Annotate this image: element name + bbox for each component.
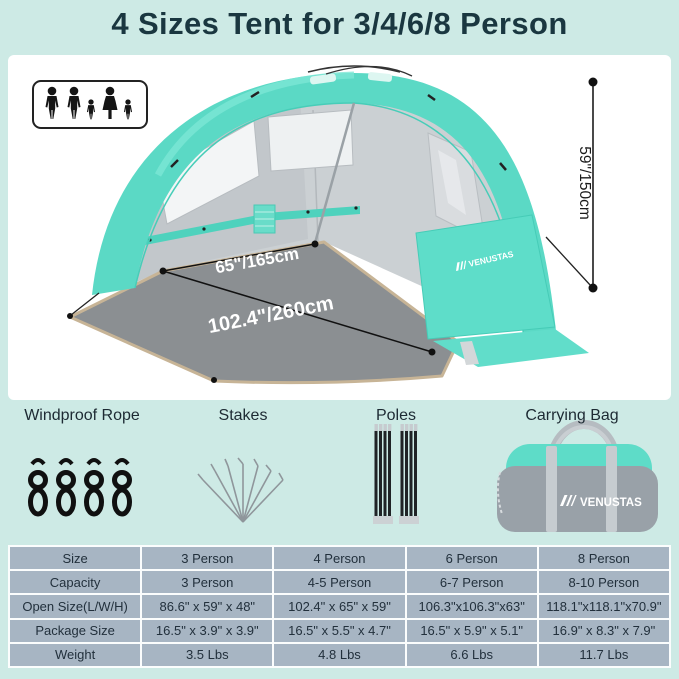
spec-cell: 16.5" x 5.5" x 4.7" xyxy=(274,620,404,642)
tent-side-panel: VENUSTAS xyxy=(416,215,589,367)
spec-cell: 3.5 Lbs xyxy=(142,644,272,666)
spec-cell: 102.4" x 65" x 59" xyxy=(274,595,404,617)
spec-cell: 106.3"x106.3"x63" xyxy=(407,595,537,617)
spec-cell: 4-5 Person xyxy=(274,571,404,593)
mesh-pocket xyxy=(254,205,275,233)
spec-cell: 4.8 Lbs xyxy=(274,644,404,666)
accessories-section: Windproof Rope Stakes Poles Carrying Bag xyxy=(8,400,671,545)
accessory-label-poles: Poles xyxy=(321,407,471,425)
page-title: 4 Sizes Tent for 3/4/6/8 Person xyxy=(0,6,679,42)
product-infographic: 4 Sizes Tent for 3/4/6/8 Person xyxy=(0,0,679,679)
tent-illustration: VENUSTAS 65"/165cm xyxy=(8,55,671,400)
family-capacity-icon xyxy=(33,81,147,128)
spec-col-header: 4 Person xyxy=(274,547,404,569)
spec-cell: 6.6 Lbs xyxy=(407,644,537,666)
dimension-height: 59"/150cm xyxy=(576,78,598,293)
windproof-rope-icon xyxy=(31,460,130,514)
spec-cell: 86.6" x 59" x 48" xyxy=(142,595,272,617)
spec-row-label: Open Size(L/W/H) xyxy=(10,595,140,617)
height-label: 59"/150cm xyxy=(576,146,593,220)
accessory-label-stakes: Stakes xyxy=(168,407,318,425)
carrying-bag-icon: VENUSTAS xyxy=(497,424,658,532)
accessory-label-rope: Windproof Rope xyxy=(7,407,157,425)
poles-icon xyxy=(373,424,419,524)
spec-cell: 16.9" x 8.3" x 7.9" xyxy=(539,620,669,642)
spec-col-header: 3 Person xyxy=(142,547,272,569)
bag-brand-text: VENUSTAS xyxy=(580,497,642,509)
spec-cell: 11.7 Lbs xyxy=(539,644,669,666)
tent-window-middle xyxy=(268,110,353,171)
spec-cell: 8-10 Person xyxy=(539,571,669,593)
spec-col-header: Size xyxy=(10,547,140,569)
spec-cell: 16.5" x 5.9" x 5.1" xyxy=(407,620,537,642)
tent-hero-panel: VENUSTAS 65"/165cm xyxy=(8,55,671,400)
stakes-icon xyxy=(198,458,283,522)
spec-table: Size 3 Person 4 Person 6 Person 8 Person… xyxy=(8,545,671,668)
spec-cell: 6-7 Person xyxy=(407,571,537,593)
spec-cell: 3 Person xyxy=(142,571,272,593)
spec-row-label: Package Size xyxy=(10,620,140,642)
spec-row-label: Weight xyxy=(10,644,140,666)
accessory-label-bag: Carrying Bag xyxy=(497,407,647,425)
spec-col-header: 8 Person xyxy=(539,547,669,569)
spec-cell: 118.1"x118.1"x70.9" xyxy=(539,595,669,617)
spec-col-header: 6 Person xyxy=(407,547,537,569)
spec-cell: 16.5" x 3.9" x 3.9" xyxy=(142,620,272,642)
spec-row-label: Capacity xyxy=(10,571,140,593)
